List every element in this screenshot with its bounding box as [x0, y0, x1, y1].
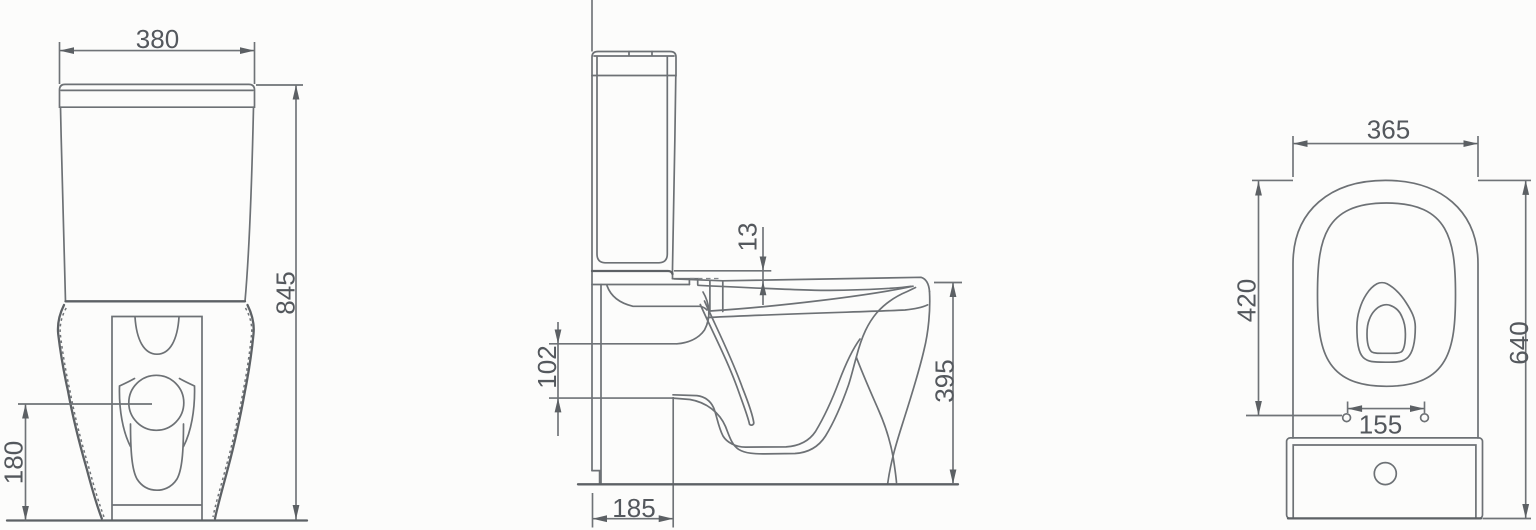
svg-text:640: 640 — [1504, 321, 1534, 364]
svg-text:420: 420 — [1231, 279, 1261, 322]
svg-text:845: 845 — [270, 271, 300, 314]
svg-text:380: 380 — [136, 24, 179, 54]
svg-text:180: 180 — [0, 441, 28, 484]
svg-text:102: 102 — [532, 345, 562, 388]
svg-text:155: 155 — [1359, 410, 1402, 440]
svg-text:185: 185 — [612, 493, 655, 523]
svg-text:365: 365 — [1367, 115, 1410, 145]
svg-text:13: 13 — [732, 223, 762, 252]
svg-text:395: 395 — [929, 359, 959, 402]
